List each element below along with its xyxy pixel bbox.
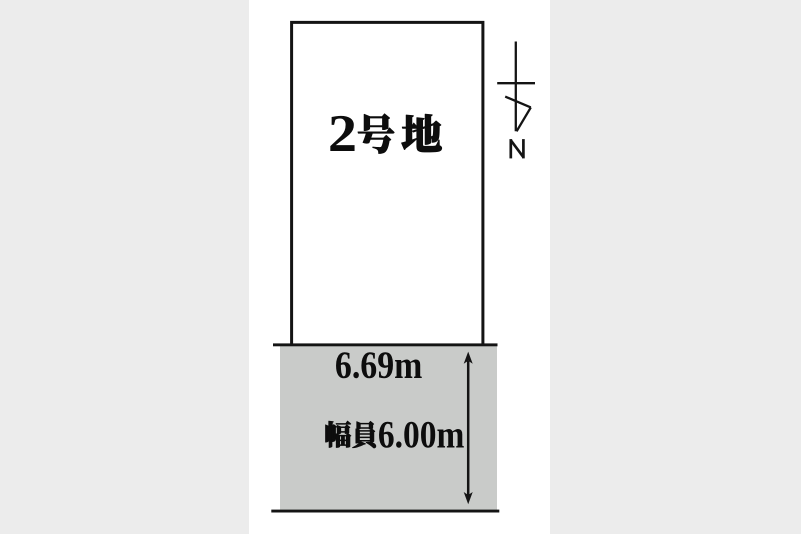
svg-text:6.00m: 6.00m — [378, 414, 465, 457]
svg-text:2: 2 — [328, 105, 357, 163]
svg-text:6.69m: 6.69m — [335, 344, 423, 387]
